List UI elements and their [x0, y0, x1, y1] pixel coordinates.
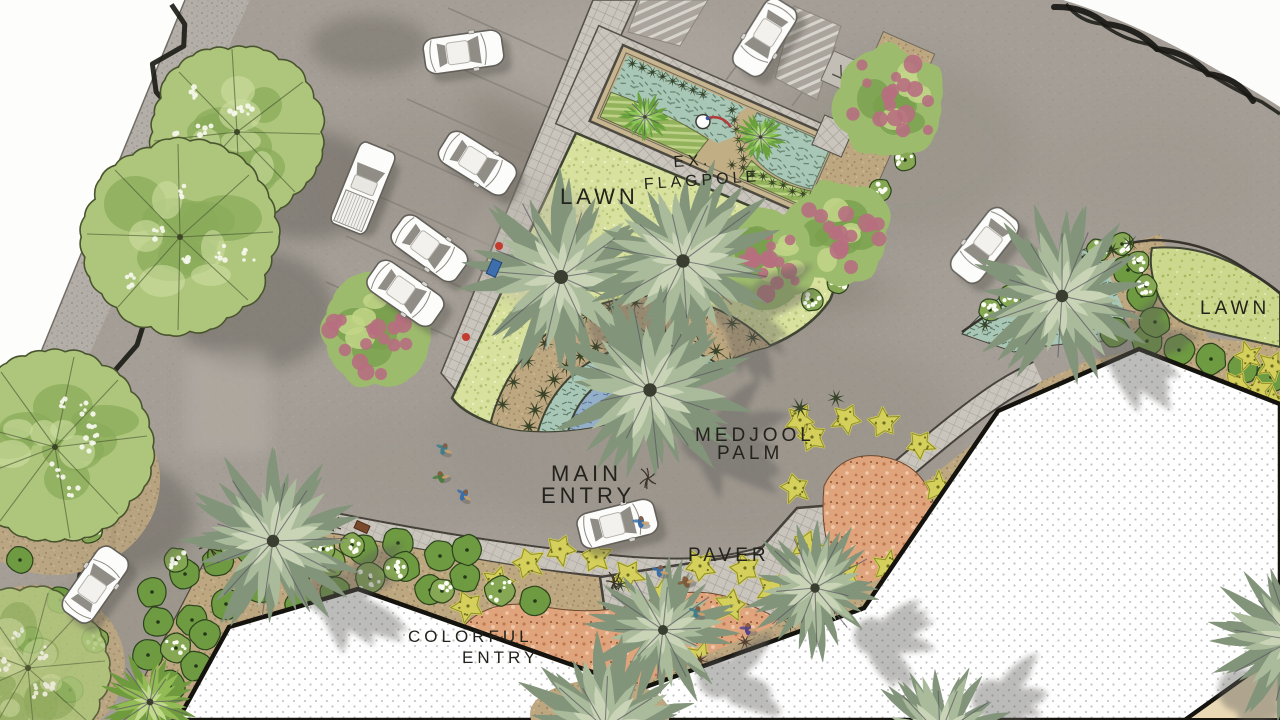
svg-text:EX.: EX.: [673, 152, 712, 172]
svg-text:ENTRY: ENTRY: [541, 483, 635, 508]
svg-text:PAVER: PAVER: [688, 545, 770, 566]
svg-text:LAWN: LAWN: [560, 184, 639, 209]
svg-text:LAWN: LAWN: [1200, 298, 1270, 319]
svg-text:PALM: PALM: [717, 443, 783, 464]
svg-text:ENTRY: ENTRY: [462, 648, 539, 667]
svg-text:COLORFUL: COLORFUL: [408, 627, 533, 646]
